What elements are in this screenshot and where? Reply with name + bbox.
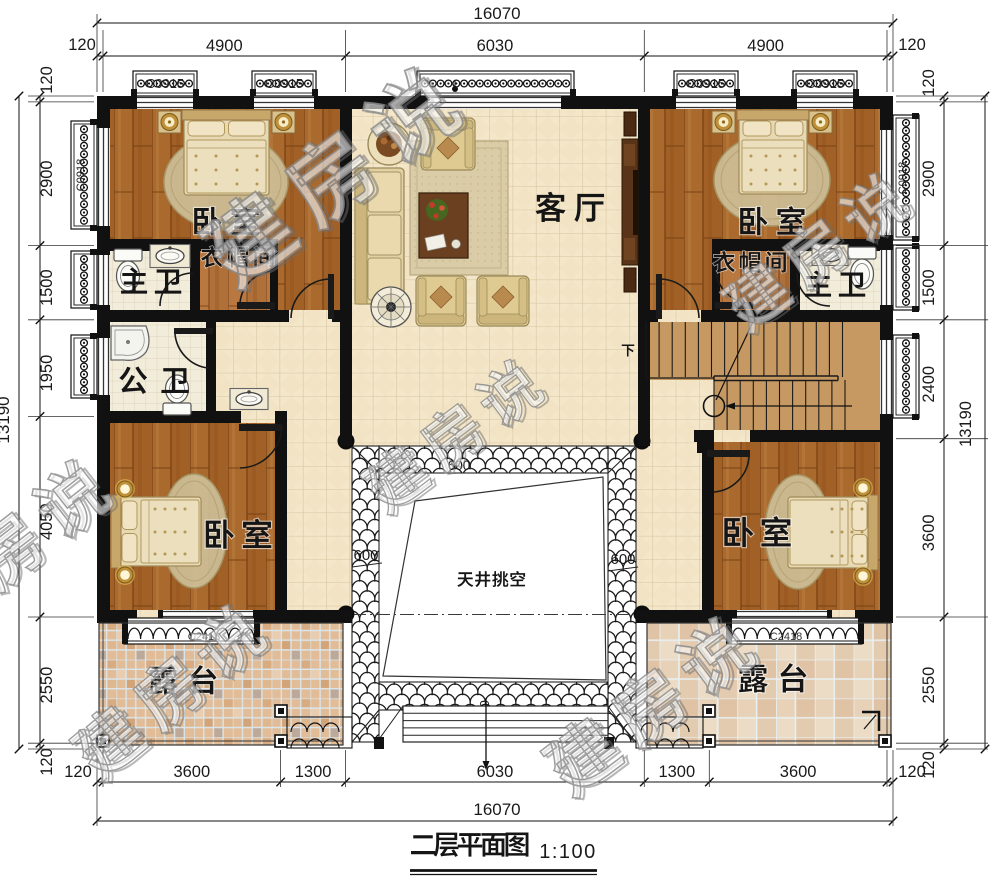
- svg-text:2400: 2400: [920, 366, 938, 403]
- svg-text:C0915: C0915: [265, 76, 303, 91]
- svg-text:C0918: C0918: [75, 159, 87, 191]
- svg-text:3600: 3600: [780, 763, 817, 781]
- svg-text:C0915: C0915: [687, 76, 725, 91]
- svg-text:2900: 2900: [920, 160, 938, 197]
- svg-text:C2418: C2418: [770, 631, 802, 643]
- svg-text:120: 120: [898, 763, 926, 781]
- svg-text:6030: 6030: [477, 37, 514, 55]
- svg-text:4900: 4900: [206, 37, 243, 55]
- svg-text:1950: 1950: [38, 355, 56, 392]
- svg-text:6030: 6030: [477, 763, 514, 781]
- svg-text:1500: 1500: [920, 269, 938, 306]
- svg-text:3600: 3600: [920, 514, 938, 551]
- svg-text:120: 120: [38, 748, 56, 776]
- svg-text:120: 120: [64, 763, 92, 781]
- svg-text:600: 600: [353, 547, 378, 564]
- svg-text:600: 600: [610, 551, 635, 568]
- svg-text:1:100: 1:100: [539, 841, 597, 863]
- svg-text:2550: 2550: [38, 667, 56, 704]
- svg-text:120: 120: [920, 69, 938, 97]
- svg-text:120: 120: [38, 66, 56, 94]
- svg-text:2550: 2550: [920, 667, 938, 704]
- svg-text:C0915: C0915: [806, 76, 844, 91]
- svg-text:3600: 3600: [173, 763, 210, 781]
- svg-text:16070: 16070: [473, 800, 520, 819]
- svg-text:120: 120: [898, 36, 926, 54]
- svg-text:1300: 1300: [295, 763, 332, 781]
- svg-text:C0918: C0918: [897, 162, 909, 194]
- svg-text:C0915: C0915: [146, 76, 184, 91]
- svg-text:1500: 1500: [38, 269, 56, 306]
- svg-text:13190: 13190: [0, 396, 13, 443]
- svg-text:13190: 13190: [957, 401, 975, 447]
- svg-text:2900: 2900: [38, 160, 56, 197]
- svg-text:120: 120: [68, 36, 96, 54]
- svg-text:4900: 4900: [747, 37, 784, 55]
- svg-text:1300: 1300: [658, 763, 695, 781]
- svg-text:16070: 16070: [473, 4, 520, 23]
